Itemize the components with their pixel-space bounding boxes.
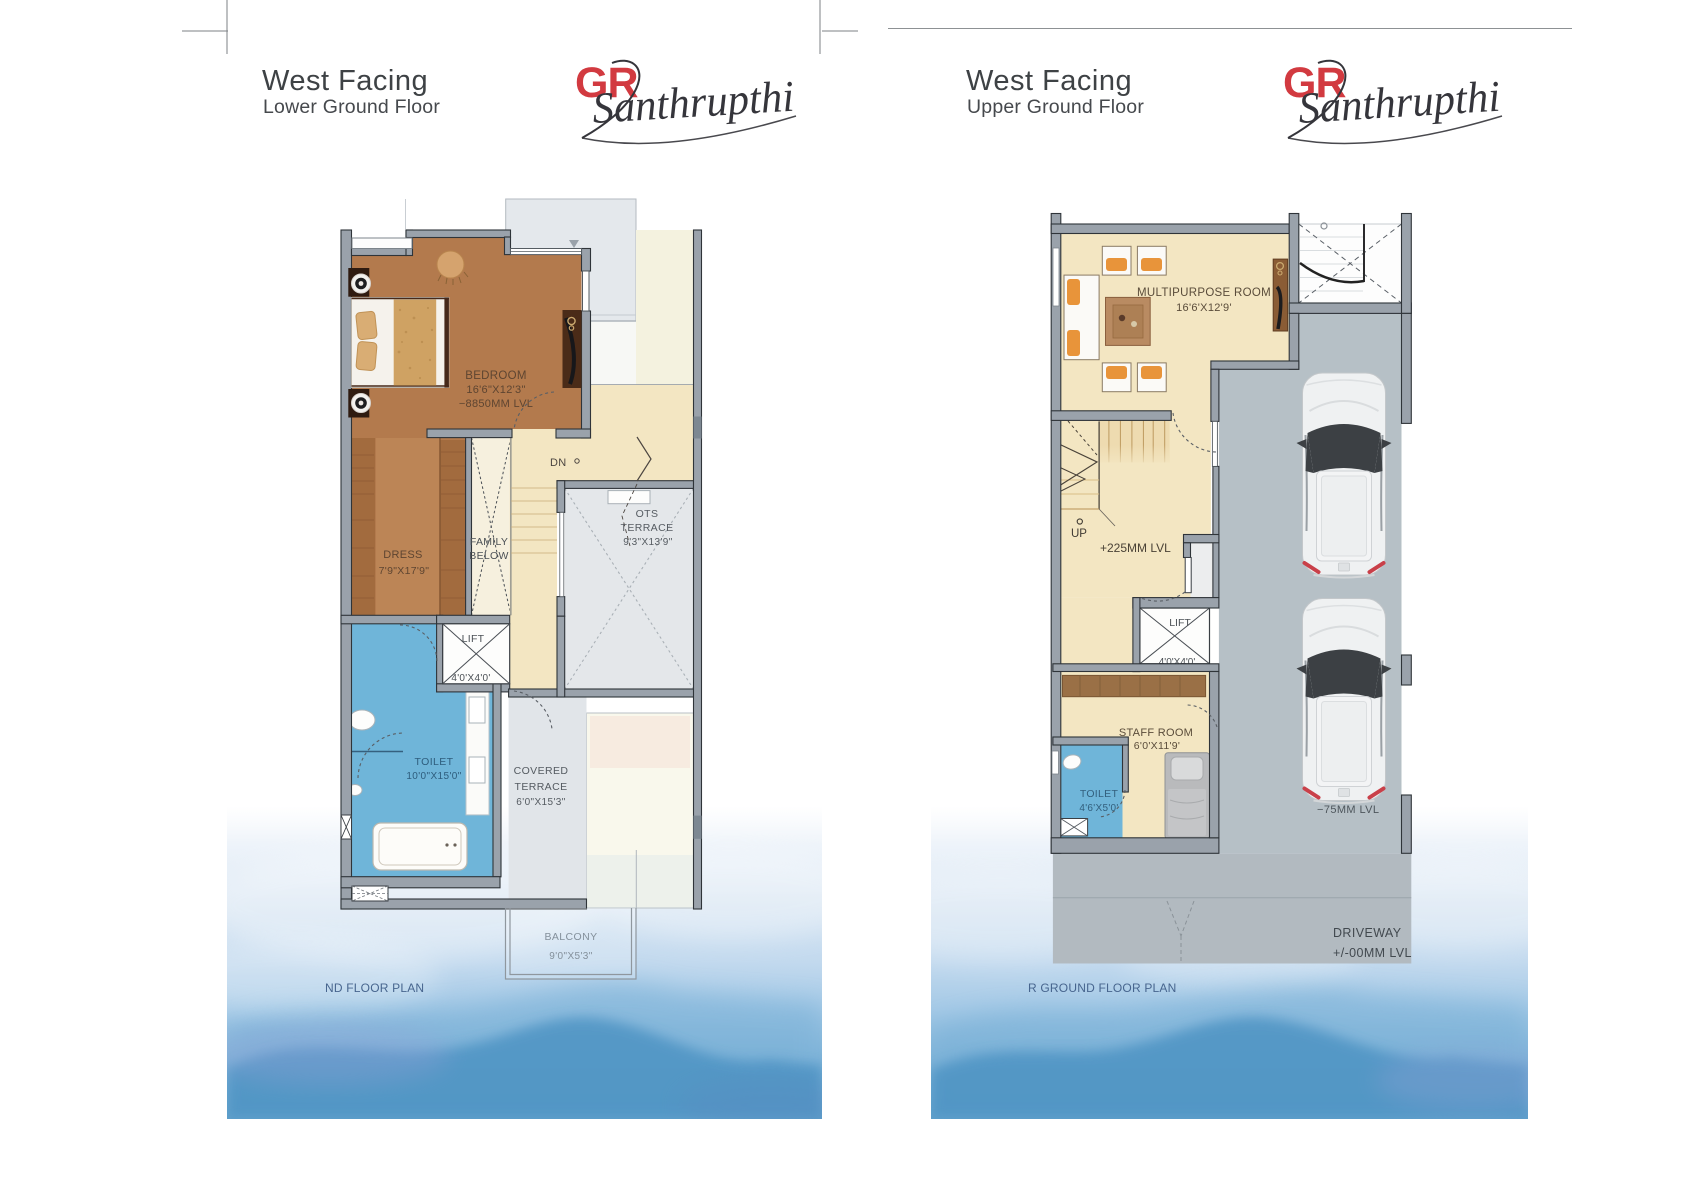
svg-text:6'0'X11'9': 6'0'X11'9': [1134, 740, 1180, 752]
svg-text:FAMILY: FAMILY: [470, 536, 508, 548]
svg-text:16'6'X12'9': 16'6'X12'9': [1176, 302, 1232, 314]
svg-text:16'6"X12'3": 16'6"X12'3": [466, 384, 525, 396]
svg-text:West Facing: West Facing: [966, 65, 1132, 97]
svg-text:West Facing: West Facing: [262, 65, 428, 97]
svg-text:COVERED: COVERED: [514, 765, 569, 777]
svg-text:DN: DN: [550, 457, 567, 469]
svg-text:Lower Ground Floor: Lower Ground Floor: [263, 96, 440, 118]
svg-text:10'0"X15'0": 10'0"X15'0": [406, 771, 461, 782]
svg-text:TOILET: TOILET: [415, 756, 454, 768]
svg-text:6'0"X15'3": 6'0"X15'3": [516, 797, 565, 808]
svg-text:DRIVEWAY: DRIVEWAY: [1333, 926, 1402, 940]
svg-text:TERRACE: TERRACE: [621, 522, 674, 534]
svg-text:LIFT: LIFT: [1169, 617, 1191, 629]
svg-text:ND FLOOR PLAN: ND FLOOR PLAN: [325, 981, 424, 995]
svg-text:9'0"X5'3": 9'0"X5'3": [549, 951, 592, 962]
svg-text:−75MM LVL: −75MM LVL: [1317, 804, 1379, 816]
svg-text:9'3"X13'9": 9'3"X13'9": [623, 537, 672, 548]
svg-text:+225MM LVL: +225MM LVL: [1100, 541, 1171, 555]
svg-text:BEDROOM: BEDROOM: [465, 370, 527, 382]
svg-text:MULTIPURPOSE ROOM: MULTIPURPOSE ROOM: [1137, 287, 1271, 299]
svg-text:7'9"X17'9": 7'9"X17'9": [379, 565, 430, 577]
svg-text:4'6'X5'0': 4'6'X5'0': [1079, 803, 1118, 814]
svg-text:4'0'X4'0': 4'0'X4'0': [451, 673, 490, 684]
svg-text:−8850MM LVL: −8850MM LVL: [459, 398, 533, 410]
svg-text:+/-00MM LVL: +/-00MM LVL: [1333, 946, 1412, 960]
svg-text:Upper Ground Floor: Upper Ground Floor: [967, 96, 1144, 118]
svg-text:UP: UP: [1071, 528, 1087, 540]
svg-text:STAFF ROOM: STAFF ROOM: [1119, 727, 1193, 739]
svg-text:R GROUND FLOOR PLAN: R GROUND FLOOR PLAN: [1028, 981, 1177, 995]
svg-text:OTS: OTS: [636, 508, 659, 520]
svg-text:TERRACE: TERRACE: [515, 781, 568, 793]
svg-text:BALCONY: BALCONY: [545, 931, 598, 943]
svg-text:DRESS: DRESS: [383, 549, 422, 561]
svg-text:BELOW: BELOW: [469, 550, 508, 562]
svg-text:TOILET: TOILET: [1080, 788, 1119, 800]
svg-text:LIFT: LIFT: [462, 633, 485, 645]
